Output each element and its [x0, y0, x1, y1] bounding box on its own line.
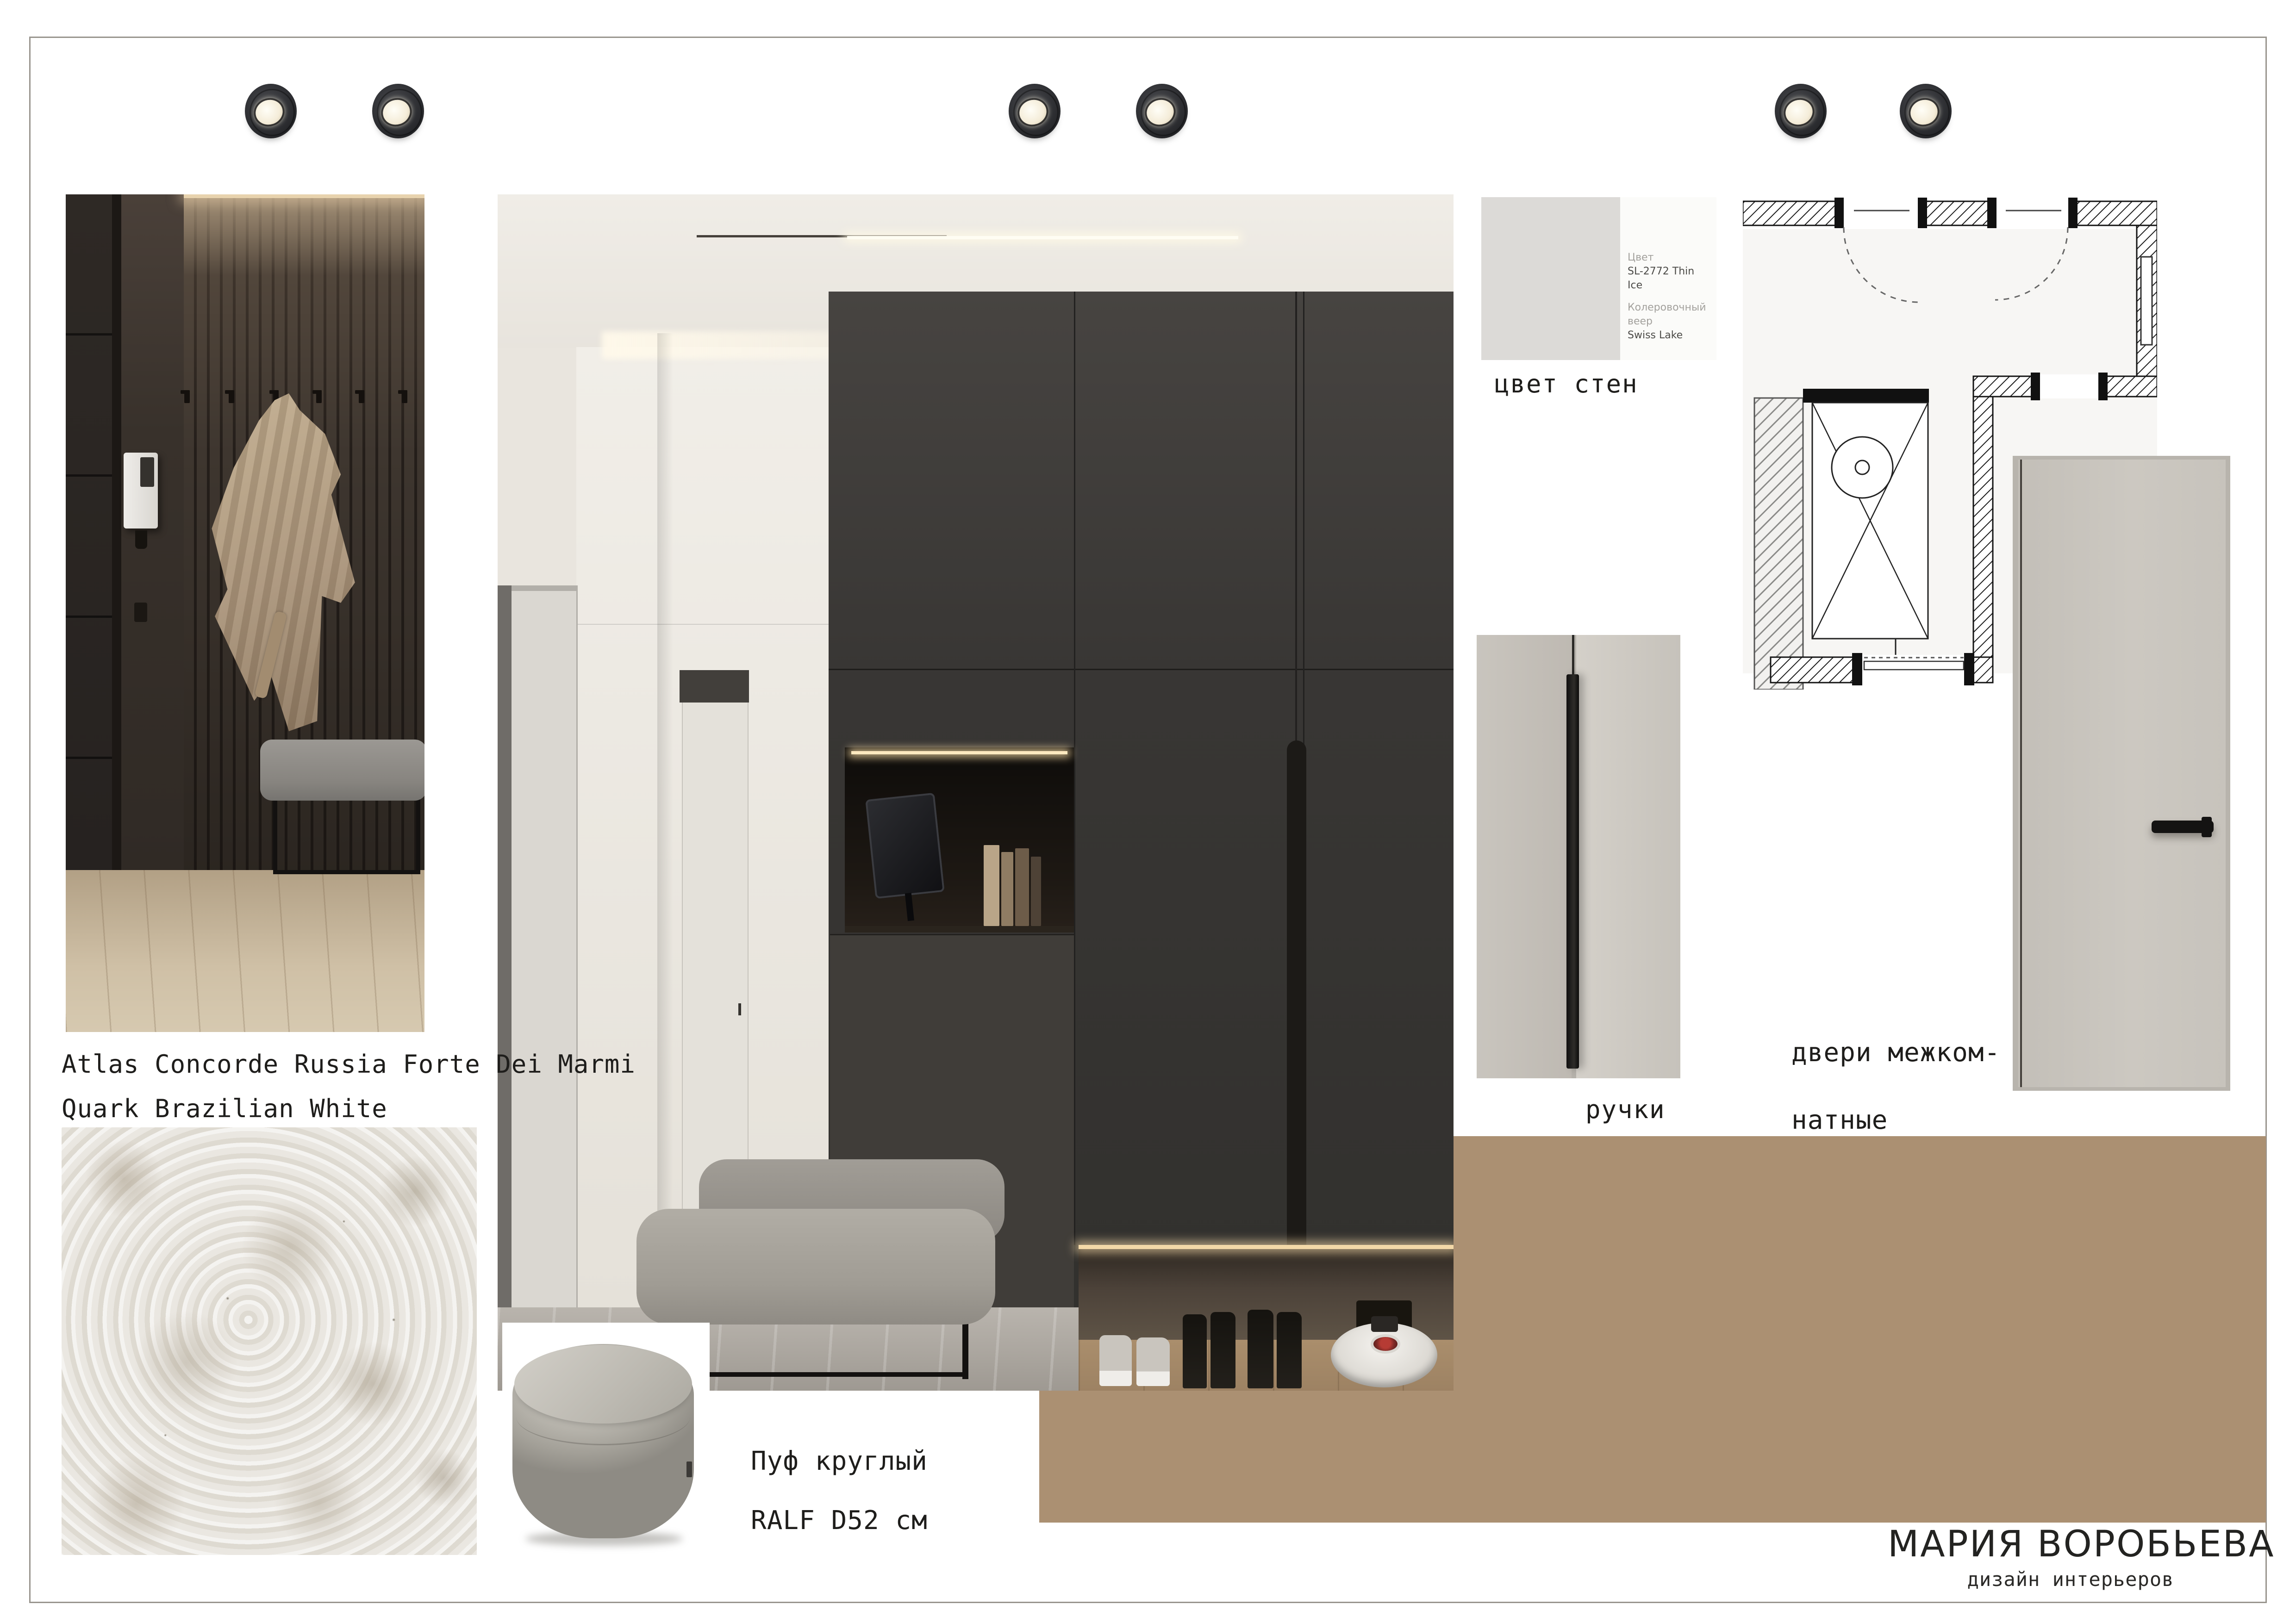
- cabinet-door-right: [1576, 635, 1680, 1078]
- wall-paint-swatch: [1481, 197, 1620, 360]
- cabinet-door-left: [1477, 635, 1572, 1078]
- wall-paint-info-panel: Цвет SL-2772 Thin Ice Колеровочный веер …: [1620, 197, 1716, 360]
- hallway-photo-main: [498, 194, 1454, 1391]
- niche-shelf: [845, 926, 1074, 933]
- boot: [1277, 1312, 1302, 1388]
- intercom-panel: [124, 453, 158, 529]
- spotlight-image-4: [1136, 84, 1188, 138]
- shoe-niche: [1079, 1245, 1454, 1391]
- designer-name: МАРИЯ ВОРОБЬЕВА: [1888, 1524, 2253, 1565]
- handles-label: ручки: [1585, 1095, 1666, 1124]
- spotlight-image-3: [1009, 84, 1061, 138]
- gray-bench-front-cushion: [636, 1209, 995, 1325]
- book: [1015, 848, 1029, 926]
- pouf-label-line1: Пуф круглый: [751, 1432, 928, 1491]
- coat-hook: [402, 390, 407, 403]
- hallway-photo-dark: [66, 194, 424, 1032]
- door-slab: [2018, 460, 2226, 1087]
- spotlight-lens: [250, 94, 288, 131]
- dark-entrance-door: [66, 194, 112, 875]
- wardrobe-door-gap: [1295, 292, 1297, 743]
- white-door-left: [512, 585, 578, 1315]
- spotlight-lens: [1905, 94, 1943, 131]
- door-reveal-left: [498, 585, 512, 1310]
- wardrobe-seam: [1074, 292, 1075, 1245]
- book: [1001, 852, 1013, 926]
- door-frame-line: [2020, 460, 2022, 1087]
- dark-wall: [121, 194, 184, 875]
- marble-title-line2: Quark Brazilian White: [62, 1087, 636, 1131]
- spotlight-lens: [1014, 94, 1052, 131]
- long-black-handle: [1566, 674, 1579, 1069]
- intercom-handset: [135, 530, 147, 549]
- marble-swatch: [62, 1127, 477, 1555]
- niche-led-strip: [851, 751, 1067, 754]
- spotlight-lens: [1141, 94, 1179, 131]
- sneaker: [1136, 1337, 1170, 1386]
- doors-label: двери межком- натные: [1791, 1019, 2000, 1154]
- doors-label-line2: натные: [1791, 1087, 2000, 1154]
- book: [984, 845, 999, 926]
- paint-fan-value: Swiss Lake: [1628, 329, 1711, 342]
- bench-cushion: [260, 740, 424, 801]
- pouf-product-photo: [502, 1323, 710, 1557]
- door-handle-rosette: [2202, 817, 2212, 837]
- spotlight-lens: [377, 94, 416, 131]
- marble-title: Atlas Concorde Russia Forte Dei Marmi Qu…: [62, 1042, 636, 1131]
- handle-gap-line: [1572, 635, 1574, 676]
- door-frame: [112, 194, 121, 875]
- round-pouf: [512, 1344, 694, 1538]
- table-mirror: [865, 793, 945, 899]
- display-niche: [845, 747, 1074, 933]
- book: [1031, 857, 1041, 926]
- designer-subtitle: дизайн интерьеров: [1888, 1568, 2253, 1591]
- paint-fan-label: Колеровочный веер: [1628, 301, 1711, 329]
- spotlight-image-2: [372, 84, 424, 138]
- spotlight-image-6: [1900, 84, 1952, 138]
- paint-color-label: Цвет: [1628, 251, 1711, 265]
- coat-hook: [229, 390, 234, 403]
- spotlight-lens: [1780, 94, 1818, 131]
- wardrobe-seam: [829, 669, 1454, 670]
- pouf-label-tag: [686, 1461, 692, 1477]
- sneaker: [1099, 1335, 1132, 1386]
- doors-label-line1: двери межком-: [1791, 1019, 2000, 1087]
- handles-photo: [1477, 635, 1680, 1078]
- coat-hook: [316, 390, 322, 403]
- boot: [1183, 1314, 1207, 1388]
- ceiling-led-line: [847, 236, 1238, 239]
- bench-frame: [273, 797, 420, 874]
- recessed-handle-groove: [1287, 740, 1306, 1246]
- moodboard-page: Цвет SL-2772 Thin Ice Колеровочный веер …: [0, 0, 2296, 1623]
- wall-corner-shadow: [657, 333, 673, 1310]
- spotlight-image-1: [245, 84, 297, 138]
- paint-color-value: SL-2772 Thin Ice: [1628, 265, 1711, 292]
- shoe-niche-led: [1079, 1245, 1454, 1249]
- spotlight-image-5: [1775, 84, 1827, 138]
- cove-light: [184, 194, 424, 198]
- door-handle-mark: [738, 1003, 741, 1015]
- robot-vacuum: [1331, 1323, 1437, 1387]
- light-wood-floor: [66, 870, 424, 1032]
- pouf-label-line2: RALF D52 см: [751, 1491, 928, 1550]
- boot: [1248, 1310, 1273, 1388]
- marble-title-line1: Atlas Concorde Russia Forte Dei Marmi: [62, 1042, 636, 1087]
- wall-color-label: цвет стен: [1494, 369, 1638, 398]
- interior-door-photo: [2013, 456, 2230, 1091]
- wall-switch: [134, 603, 147, 622]
- door-reveal-inner: [680, 670, 749, 703]
- boot: [1210, 1312, 1235, 1388]
- coat-hook: [359, 390, 364, 403]
- pouf-label: Пуф круглый RALF D52 см: [751, 1432, 928, 1550]
- coat-hook: [184, 390, 190, 403]
